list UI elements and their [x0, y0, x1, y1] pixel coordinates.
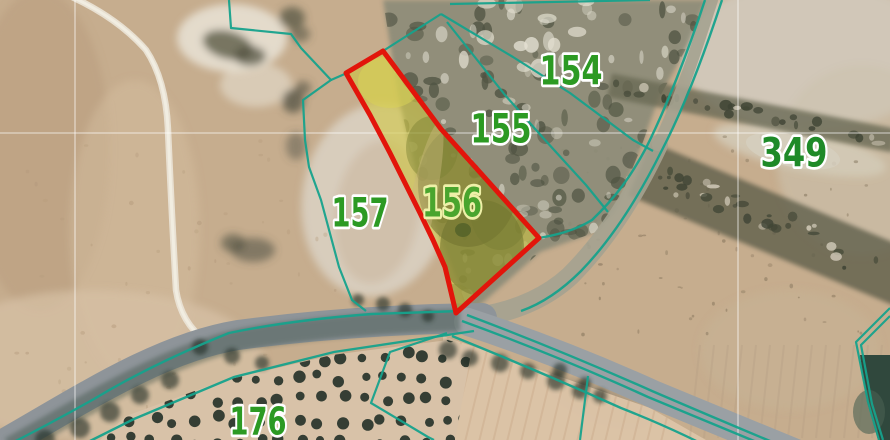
terrain-texture-blob: [258, 154, 263, 156]
terrain-texture-blob: [804, 194, 807, 197]
terrain-texture-blob: [606, 192, 611, 199]
terrain-texture-blob: [530, 179, 544, 187]
terrain-texture-blob: [14, 352, 19, 355]
cadastral-map-svg: 154155156157349176: [0, 0, 890, 440]
terrain-texture-blob: [298, 272, 300, 276]
terrain-texture-blob: [768, 263, 773, 267]
parcel-label-157: 157: [332, 190, 389, 236]
terrain-texture-blob: [712, 302, 715, 306]
terrain-texture-blob: [197, 221, 202, 225]
terrain-texture-blob: [666, 6, 676, 14]
terrain-texture-blob: [58, 379, 61, 384]
terrain-texture-blob: [692, 315, 695, 318]
terrain-texture-blob: [638, 235, 643, 238]
terrain-texture-blob: [423, 77, 441, 85]
terrain-texture-blob: [188, 266, 191, 270]
terrain-texture-blob: [156, 250, 160, 253]
terrain-texture-blob: [681, 12, 686, 23]
terrain-texture-blob: [608, 55, 614, 63]
terrain-texture-blob: [624, 118, 632, 122]
terrain-texture-blob: [258, 139, 262, 143]
terrain-texture-blob: [267, 158, 270, 162]
terrain-blob: [286, 132, 306, 160]
terrain-texture-blob: [589, 139, 601, 146]
terrain-texture-blob: [548, 206, 562, 213]
terrain-texture-blob: [804, 318, 807, 322]
terrain-texture-blob: [598, 263, 603, 266]
terrain-texture-blob: [43, 199, 48, 202]
terrain-texture-blob: [441, 73, 449, 84]
terrain-texture-blob: [689, 317, 692, 320]
terrain-texture-blob: [823, 321, 827, 323]
terrain-texture-blob: [561, 109, 568, 126]
terrain-texture-blob: [608, 102, 623, 117]
terrain-texture-blob: [553, 167, 570, 184]
terrain-texture-blob: [726, 309, 728, 312]
terrain-texture-blob: [669, 30, 681, 44]
terrain-texture-blob: [680, 287, 682, 289]
terrain-texture-blob: [35, 182, 38, 187]
terrain-texture-blob: [865, 184, 869, 187]
terrain-texture-blob: [617, 268, 619, 271]
terrain-blob: [290, 26, 310, 42]
terrain-texture-blob: [860, 332, 863, 335]
terrain-texture-blob: [406, 52, 411, 59]
terrain-texture-blob: [524, 37, 539, 53]
terrain-texture-blob: [847, 213, 849, 216]
terrain-texture-blob: [26, 170, 30, 174]
terrain-texture-blob: [857, 330, 859, 332]
terrain-texture-blob: [798, 297, 800, 299]
terrain-texture-blob: [662, 46, 669, 58]
terrain-texture-blob: [723, 135, 727, 138]
terrain-texture-blob: [84, 144, 89, 147]
terrain-blob: [295, 81, 311, 95]
terrain-texture-blob: [505, 154, 520, 164]
terrain-texture-blob: [540, 211, 552, 219]
terrain-texture-blob: [25, 352, 29, 355]
terrain-texture-blob: [39, 275, 44, 278]
terrain-texture-blob: [599, 297, 601, 301]
terrain-texture-blob: [832, 295, 836, 298]
terrain-texture-blob: [751, 254, 754, 257]
terrain-texture-blob: [830, 188, 832, 191]
terrain-texture-blob: [480, 56, 494, 66]
terrain-texture-blob: [230, 282, 233, 284]
terrain-texture-blob: [436, 97, 450, 111]
terrain-texture-blob: [334, 289, 337, 292]
terrain-texture-blob: [790, 284, 794, 289]
terrain-texture-blob: [538, 200, 550, 210]
terrain-texture-blob: [656, 67, 663, 80]
terrain-texture-blob: [745, 159, 749, 162]
terrain-texture-blob: [581, 333, 585, 337]
terrain-texture-blob: [517, 205, 531, 212]
terrain-blob: [279, 7, 305, 29]
terrain-texture-blob: [279, 200, 283, 202]
terrain-texture-blob: [722, 239, 726, 242]
terrain-texture-blob: [129, 201, 134, 205]
terrain-texture-blob: [91, 244, 93, 247]
terrain-texture-blob: [474, 6, 485, 21]
parcel-label-176: 176: [230, 400, 287, 440]
parcel-label-156: 156: [422, 180, 482, 226]
terrain-texture-blob: [706, 332, 709, 335]
terrain-blob: [221, 234, 245, 252]
terrain-texture-blob: [182, 170, 185, 174]
terrain-texture-blob: [60, 218, 65, 221]
terrain-texture-blob: [556, 195, 562, 201]
terrain-texture-blob: [441, 119, 446, 124]
terrain-texture-blob: [584, 282, 586, 284]
terrain-texture-blob: [323, 233, 327, 237]
terrain-texture-blob: [436, 26, 448, 42]
terrain-texture-blob: [659, 1, 665, 18]
terrain-texture-blob: [263, 354, 267, 356]
terrain-texture-blob: [287, 229, 290, 234]
terrain-texture-blob: [854, 160, 858, 163]
terrain-texture-blob: [619, 13, 632, 26]
terrain-texture-blob: [146, 291, 150, 294]
terrain-texture-blob: [194, 229, 198, 233]
terrain-texture-blob: [764, 277, 767, 281]
terrain-texture-blob: [639, 50, 643, 64]
terrain-texture-blob: [214, 259, 216, 263]
terrain-texture-blob: [637, 329, 639, 333]
parcel-label-349: 349: [761, 130, 828, 176]
terrain-texture-blob: [262, 221, 264, 224]
terrain-texture-blob: [531, 163, 539, 172]
terrain-texture-blob: [226, 262, 230, 265]
terrain-texture-blob: [665, 250, 668, 255]
terrain-texture-blob: [538, 14, 557, 24]
terrain-texture-blob: [423, 51, 430, 63]
terrain-texture-blob: [459, 51, 469, 69]
terrain-blob: [234, 46, 266, 66]
terrain-texture-blob: [568, 27, 586, 37]
map-viewport[interactable]: 154155156157349176: [0, 0, 890, 440]
terrain-texture-blob: [602, 282, 605, 285]
terrain-texture-blob: [67, 367, 71, 371]
terrain-texture-blob: [125, 282, 127, 286]
terrain-texture-blob: [85, 361, 87, 363]
terrain-texture-blob: [741, 290, 746, 293]
terrain-texture-blob: [731, 149, 734, 153]
terrain-texture-blob: [572, 189, 585, 203]
terrain-texture-blob: [80, 331, 85, 335]
terrain-texture-blob: [315, 237, 318, 242]
parcel-label-155: 155: [471, 106, 532, 152]
terrain-texture-blob: [659, 277, 663, 279]
terrain-texture-blob: [111, 324, 116, 328]
terrain-texture-blob: [563, 150, 570, 157]
terrain-texture-blob: [135, 153, 138, 158]
terrain-texture-blob: [669, 50, 680, 65]
terrain-texture-blob: [510, 173, 520, 185]
parcel-label-154: 154: [540, 48, 603, 94]
terrain-texture-blob: [642, 235, 646, 237]
terrain-blob: [220, 63, 292, 107]
terrain-texture-blob: [519, 166, 527, 181]
terrain-texture-blob: [224, 212, 228, 215]
